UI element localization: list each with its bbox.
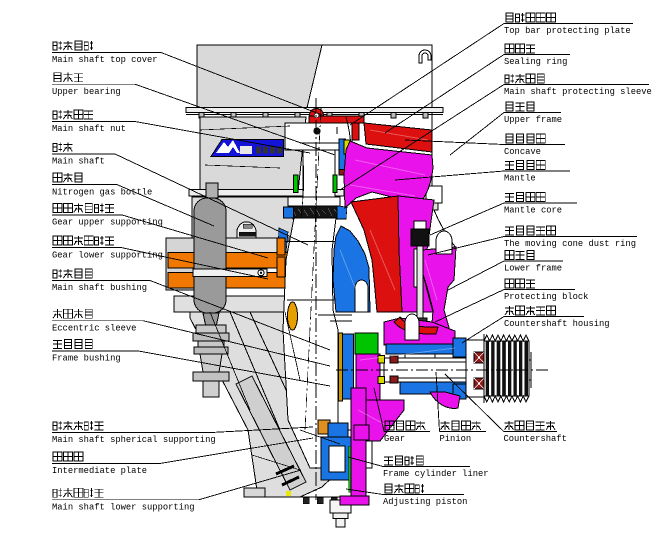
svg-text:Pinion: Pinion [440,434,472,444]
svg-text:Lower frame: Lower frame [504,264,562,274]
svg-text:The moving cone dust ring: The moving cone dust ring [504,239,636,249]
svg-text:Main shaft top cover: Main shaft top cover [52,55,158,65]
svg-text:Main shaft lower supporting: Main shaft lower supporting [52,502,195,512]
svg-text:Sealing ring: Sealing ring [504,57,567,67]
svg-text:Top bar protecting plate: Top bar protecting plate [504,26,631,36]
svg-text:Gear lower supporting: Gear lower supporting [52,250,163,260]
svg-text:Countershaft housing: Countershaft housing [504,319,610,329]
svg-text:Eccentric sleeve: Eccentric sleeve [52,323,136,333]
svg-text:Main shaft spherical supportin: Main shaft spherical supporting [52,435,216,445]
svg-text:Upper frame: Upper frame [504,115,562,125]
svg-text:Frame bushing: Frame bushing [52,354,121,364]
svg-text:Intermediate plate: Intermediate plate [52,466,147,476]
svg-text:Protecting block: Protecting block [504,292,588,302]
svg-text:Countershaft: Countershaft [504,434,567,444]
svg-text:Gear: Gear [384,434,405,444]
svg-text:Upper bearing: Upper bearing [52,87,121,97]
svg-text:Mantle core: Mantle core [504,206,562,216]
svg-text:Nitrogen gas bottle: Nitrogen gas bottle [52,187,152,197]
svg-text:Main shaft protecting sleeve: Main shaft protecting sleeve [504,87,652,97]
svg-text:Adjusting piston: Adjusting piston [383,497,467,507]
svg-text:Concave: Concave [504,147,541,157]
svg-text:Main shaft: Main shaft [52,157,105,167]
svg-text:Frame cylinder liner: Frame cylinder liner [383,469,489,479]
svg-text:Main shaft bushing: Main shaft bushing [52,283,147,293]
svg-text:Main shaft nut: Main shaft nut [52,124,126,134]
svg-text:Mantle: Mantle [504,174,536,184]
